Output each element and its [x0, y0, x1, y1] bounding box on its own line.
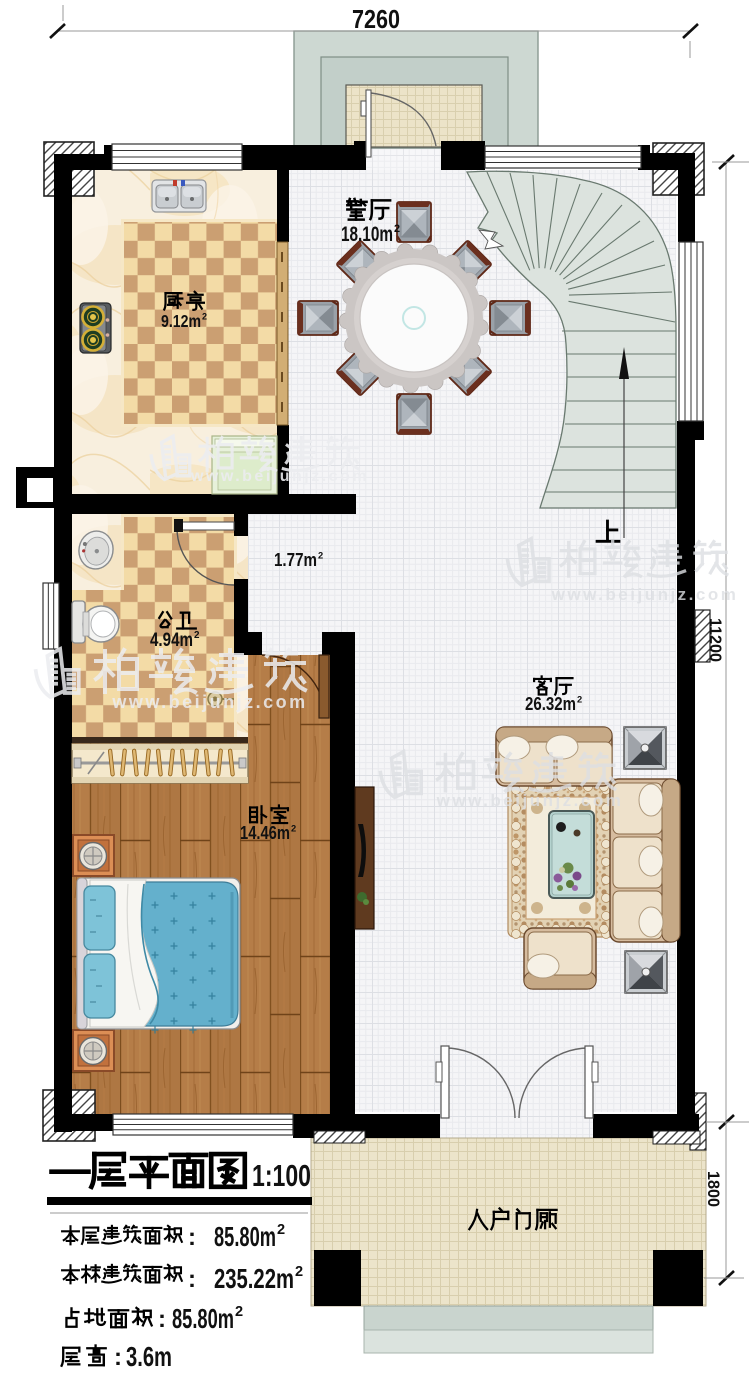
- svg-text:9.12m: 9.12m: [161, 311, 201, 331]
- svg-text:18.10m: 18.10m: [341, 223, 393, 246]
- svg-text:2: 2: [202, 312, 207, 322]
- svg-text:26.32m: 26.32m: [525, 694, 576, 714]
- svg-text:2: 2: [291, 823, 296, 833]
- svg-text:2: 2: [295, 1264, 303, 1280]
- svg-text:1800: 1800: [704, 1171, 723, 1207]
- svg-text:235.22m: 235.22m: [214, 1263, 294, 1294]
- svg-text:1.77m: 1.77m: [274, 550, 317, 570]
- svg-text:11200: 11200: [706, 618, 725, 662]
- svg-text:www.beijunjz.com: www.beijunjz.com: [436, 791, 624, 810]
- svg-text:www.beijunjz.com: www.beijunjz.com: [190, 468, 369, 485]
- svg-text::: :: [114, 1344, 122, 1371]
- svg-text:1:100: 1:100: [252, 1158, 311, 1193]
- svg-text:2: 2: [194, 630, 200, 641]
- svg-text:2: 2: [577, 694, 582, 704]
- svg-text::: :: [188, 1224, 196, 1251]
- svg-text:2: 2: [394, 223, 400, 235]
- svg-text::: :: [188, 1266, 196, 1293]
- svg-text::: :: [158, 1306, 166, 1333]
- svg-text:14.46m: 14.46m: [240, 823, 290, 843]
- svg-text:2: 2: [235, 1304, 243, 1320]
- svg-text:85.80m: 85.80m: [214, 1221, 276, 1252]
- svg-text:2: 2: [318, 550, 323, 560]
- svg-text:www.beijunjz.com: www.beijunjz.com: [111, 692, 307, 712]
- svg-text:3.6m: 3.6m: [126, 1341, 172, 1372]
- svg-text:www.beijunjz.com: www.beijunjz.com: [551, 585, 739, 604]
- svg-text:2: 2: [277, 1222, 285, 1238]
- svg-text:7260: 7260: [352, 4, 400, 34]
- svg-text:85.80m: 85.80m: [172, 1303, 234, 1334]
- svg-text:4.94m: 4.94m: [150, 630, 193, 651]
